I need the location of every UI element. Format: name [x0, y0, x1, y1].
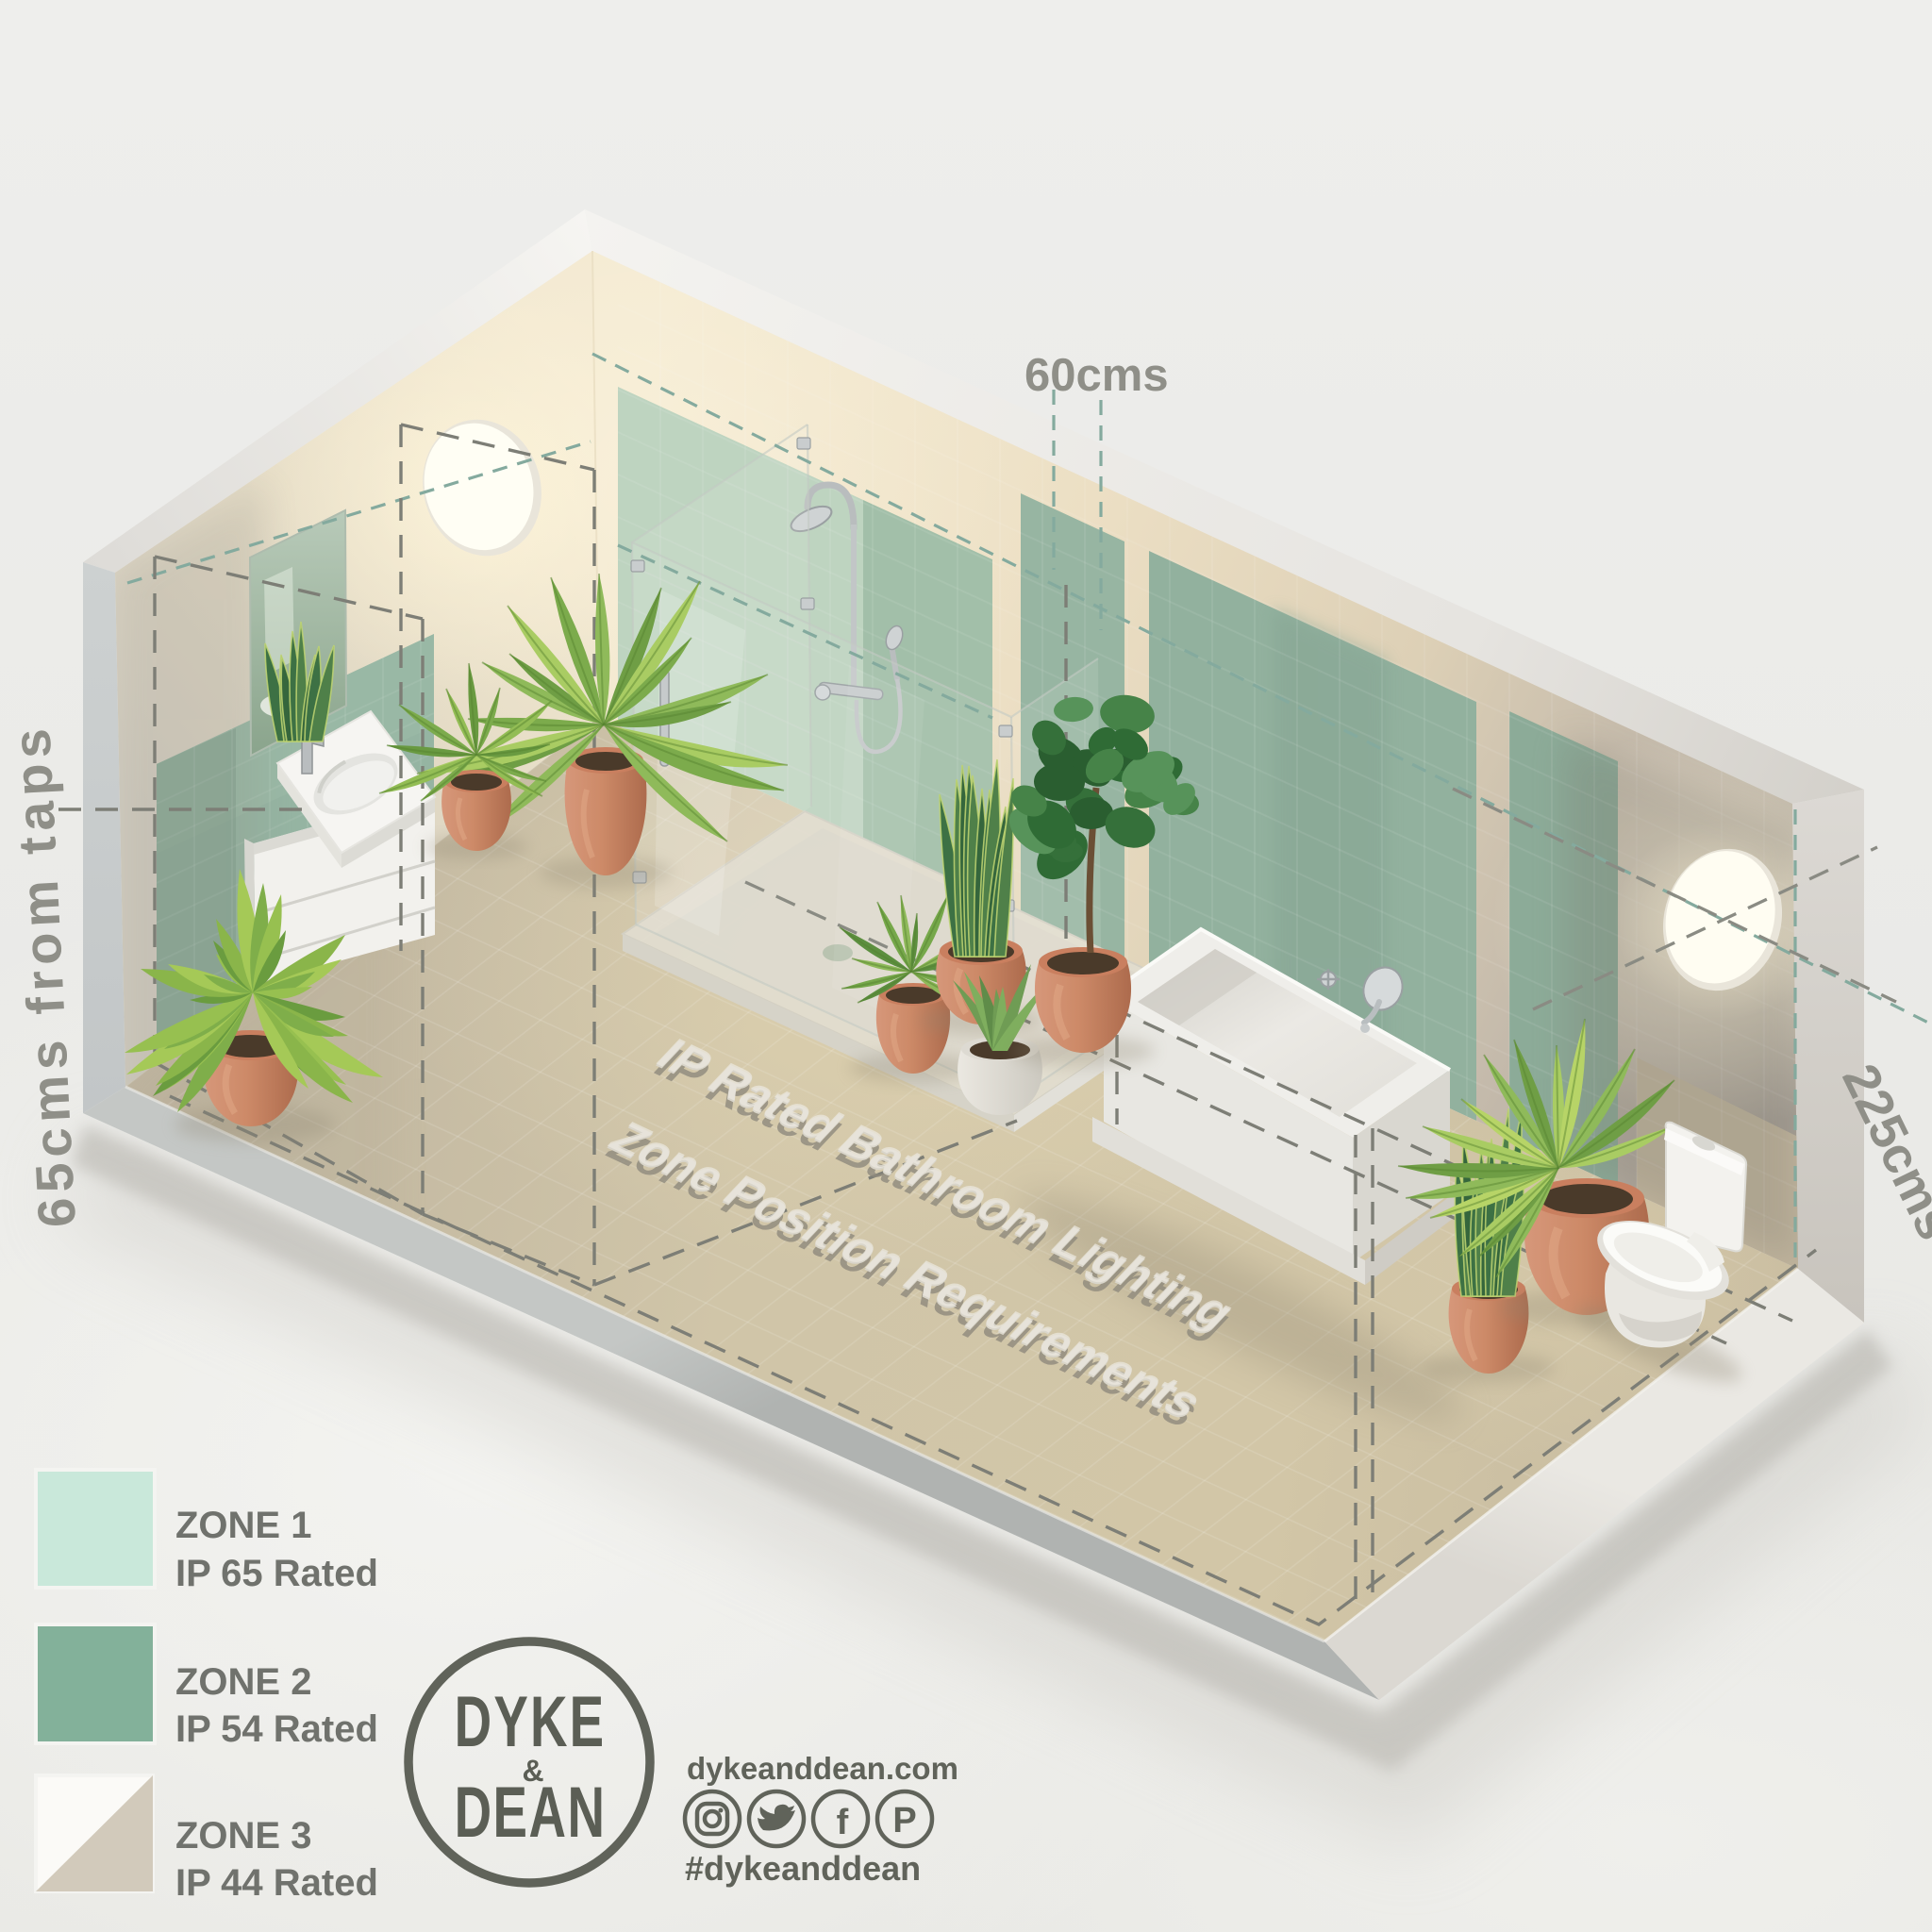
- svg-text:P: P: [892, 1801, 916, 1840]
- svg-text:DEAN: DEAN: [455, 1773, 607, 1853]
- svg-text:IP 54 Rated: IP 54 Rated: [175, 1708, 378, 1750]
- svg-text:60cms: 60cms: [1024, 350, 1169, 401]
- svg-text:DYKE: DYKE: [455, 1682, 607, 1762]
- svg-text:#dykeanddean: #dykeanddean: [685, 1849, 921, 1888]
- svg-text:dykeanddean.com: dykeanddean.com: [687, 1751, 958, 1786]
- svg-text:ZONE 2: ZONE 2: [175, 1661, 311, 1703]
- svg-text:ZONE 3: ZONE 3: [175, 1815, 311, 1857]
- svg-text:IP 44 Rated: IP 44 Rated: [175, 1862, 378, 1904]
- svg-text:ZONE 1: ZONE 1: [175, 1505, 311, 1546]
- svg-text:f: f: [837, 1803, 849, 1842]
- svg-text:IP 65 Rated: IP 65 Rated: [175, 1553, 378, 1594]
